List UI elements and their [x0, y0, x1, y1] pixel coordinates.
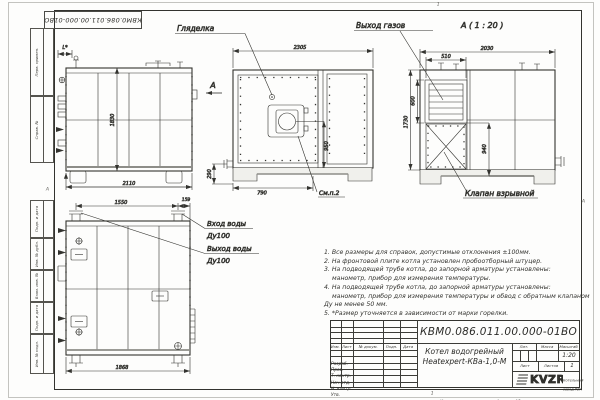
lit-label: Лит.	[520, 344, 529, 348]
company-logo: KVZR	[529, 371, 563, 387]
view-a-arrow-label: А	[209, 81, 215, 90]
rear-dim-top: 2030	[481, 46, 494, 52]
mass-label: Масса	[541, 344, 553, 348]
company-logo-text: KVZR	[530, 373, 563, 386]
rear-dim-height: 1730	[404, 116, 410, 129]
note-line: 4. На подводящей трубе котла, до запорно…	[324, 284, 582, 293]
top-water-in-label: Вход воды	[207, 220, 247, 228]
front-view: 2305 950 790 290 См.п.2 Гляделка	[175, 24, 373, 197]
note-line: 1. Все размеры для справок, допустимые о…	[324, 249, 582, 258]
rear-gas-outlet-label: Выход газов	[356, 21, 405, 30]
top-view: 1550 159 1868 Вход воды Ду100 Выход воды…	[58, 197, 259, 374]
company-logo-spring-icon	[515, 373, 528, 386]
drawing-sheet: 1 1 А А КВМ0.086.011.00.000-01ВО Перв. п…	[0, 0, 600, 400]
sheets-label: Листов	[544, 364, 558, 368]
product-name-line2: Heatexpert-КВа-1,0-М	[423, 357, 507, 367]
col-doc-label: № докум.	[359, 344, 378, 348]
sheet-label: Лист	[520, 364, 530, 368]
front-see-item-label: См.п.2	[319, 190, 339, 197]
rear-view-title: А ( 1 : 20 )	[460, 21, 503, 30]
scale-label: Масштаб	[560, 344, 578, 348]
col-data-label: Дата	[404, 344, 414, 348]
rear-view: 2030 510 600 1730 940 Выход газов А ( 1 …	[354, 21, 564, 198]
top-dim-width: 1868	[116, 365, 129, 371]
rear-dim-louver-height: 600	[411, 96, 417, 106]
col-list-label: Лист	[342, 344, 352, 348]
top-dim-edge: 159	[182, 197, 191, 203]
top-dim-pipe-spacing: 1550	[115, 200, 128, 206]
row-utv-label: Утв.	[331, 393, 340, 398]
company-line1: Котельный	[563, 379, 583, 382]
col-izm-label: Изм.	[331, 344, 340, 348]
note-line: 5. *Размер уточняется в зависимости от м…	[324, 310, 582, 319]
front-dim-bottom: 790	[257, 191, 267, 197]
side-view: 1830 2110 L* А	[56, 45, 222, 190]
rear-dim-louver-width: 510	[441, 54, 451, 60]
top-water-out-dn: Ду100	[206, 257, 231, 265]
front-dim-top: 2305	[294, 45, 307, 51]
sheets-value: 1	[570, 363, 574, 369]
side-dim-height: 1830	[110, 114, 116, 127]
side-dim-width: 2110	[123, 181, 136, 187]
rear-dim-lower: 940	[482, 144, 488, 154]
company-line2: завод РЭП	[563, 388, 582, 391]
rear-explosion-valve-label: Клапан взрывной	[465, 189, 535, 198]
front-dim-axis: 950	[324, 141, 330, 151]
note-line: 3. На подводящей трубе котла, до запорно…	[324, 266, 582, 275]
note-line: Ду не менее 50 мм.	[324, 301, 582, 310]
side-dim-l: L*	[62, 45, 68, 51]
top-water-in-dn: Ду100	[206, 232, 231, 240]
front-sight-glass-label: Гляделка	[177, 24, 215, 33]
note-line: манометр, прибор для измерения температу…	[324, 293, 582, 302]
doc-number: КВМ0.086.011.00.000-01ВО	[420, 326, 577, 338]
note-line: манометр, прибор для измерения температу…	[324, 275, 582, 284]
notes-block: 1. Все размеры для справок, допустимые о…	[324, 249, 582, 319]
top-water-out-label: Выход воды	[207, 245, 252, 253]
scale-value: 1:20	[562, 352, 575, 359]
col-podp-label: Подп.	[386, 344, 398, 348]
front-dim-foot: 290	[207, 169, 213, 179]
product-name-line1: Котел водогрейный	[425, 347, 504, 357]
